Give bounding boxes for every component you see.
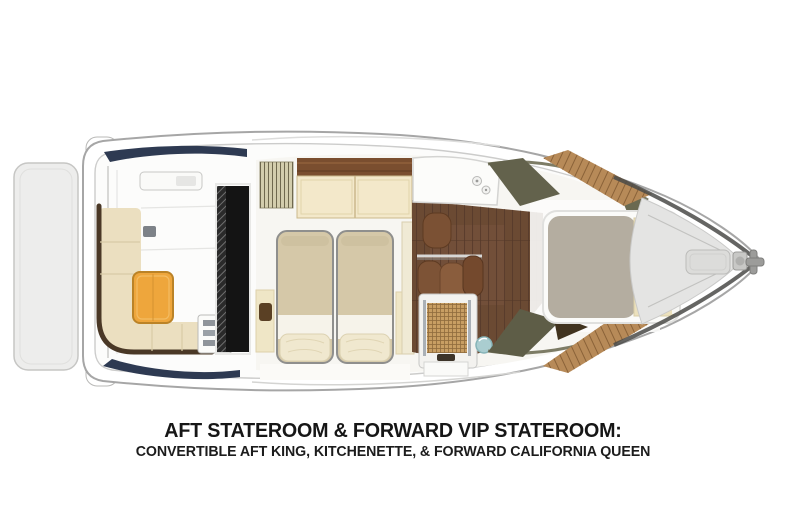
- stateroom-cabinets: [297, 176, 412, 218]
- kitchenette-counter: [413, 157, 500, 205]
- vip-mattress: [548, 216, 636, 318]
- cabin-window-glass: [226, 186, 249, 352]
- caption-title: AFT STATEROOM & FORWARD VIP STATEROOM:: [16, 419, 771, 443]
- wet-bar-sink: [176, 176, 196, 186]
- anchor-windlass: [733, 252, 747, 270]
- deck-fitting: [143, 226, 156, 237]
- stateroom-walkway: [260, 364, 410, 380]
- stateroom-locker: [260, 162, 293, 208]
- twin-bed-port: [277, 231, 333, 363]
- boat-floorplan-page: AFT STATEROOM & FORWARD VIP STATEROOM: C…: [0, 0, 786, 524]
- caption-block: AFT STATEROOM & FORWARD VIP STATEROOM: C…: [0, 419, 786, 460]
- cabin-entry-door: [216, 184, 250, 354]
- head-compartment: [419, 294, 477, 376]
- swim-platform: [14, 163, 78, 370]
- caption-subtitle: CONVERTIBLE AFT KING, KITCHENETTE, & FOR…: [8, 444, 778, 460]
- pillow: [280, 334, 330, 361]
- twin-bed-starboard: [337, 231, 393, 363]
- nightstand-drawer: [259, 303, 272, 321]
- cockpit-table: [133, 272, 173, 323]
- head-step: [424, 362, 468, 376]
- pillow: [340, 334, 390, 361]
